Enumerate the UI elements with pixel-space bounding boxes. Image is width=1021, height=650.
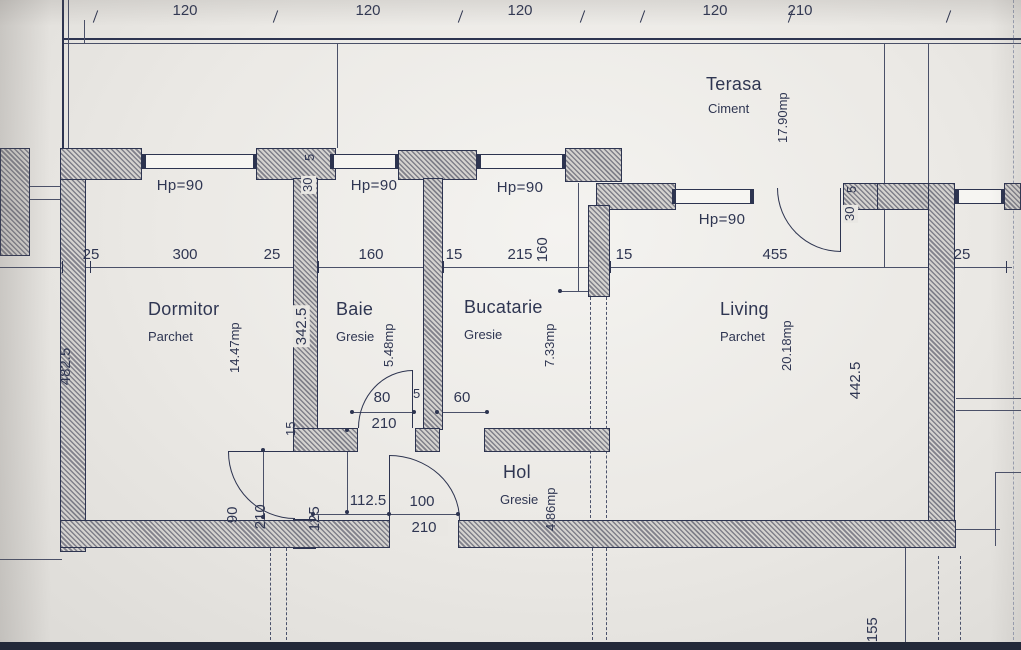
top-dim-label: 120	[493, 2, 547, 19]
photo-bottom-edge	[0, 642, 1021, 650]
dim-dot	[412, 410, 416, 414]
dim-tick	[580, 10, 585, 23]
dim-bucatarie-window: 160	[534, 237, 551, 262]
parapet-label-bucatarie: Hp=90	[488, 179, 552, 196]
dashed-partition-line	[606, 297, 607, 518]
top-dim-label: 120	[688, 2, 742, 19]
room-name-dormitor: Dormitor	[148, 299, 219, 320]
dim-dot	[485, 410, 489, 414]
parapet-label-living: Hp=90	[690, 211, 754, 228]
dormitor-door-height: 210	[252, 504, 269, 529]
entry-door-height: 210	[400, 519, 448, 536]
window-bucatarie	[477, 154, 566, 169]
terrace-top-line-inner	[64, 43, 1021, 44]
dim-label: 160	[346, 246, 396, 263]
dim-dot	[345, 428, 349, 432]
wall-baie-hol	[293, 428, 358, 452]
dashed-projection-line	[938, 556, 939, 645]
right-exterior-line	[956, 529, 1000, 530]
wall-exterior-right	[928, 183, 955, 548]
right-exterior-line	[995, 472, 996, 546]
dim-dot	[345, 510, 349, 514]
wall-bottom-right	[458, 520, 956, 548]
pier-dim: 5	[413, 387, 420, 402]
left-extension-line	[84, 20, 85, 44]
dim-tick	[640, 10, 645, 23]
hol-wall-dim: 125	[306, 506, 323, 531]
dim-left-wall-height: 482.5	[57, 348, 74, 386]
dim-label: 455	[750, 246, 800, 263]
extension-line	[337, 44, 338, 148]
dashed-partition-line	[590, 297, 591, 518]
room-name-terasa: Terasa	[706, 74, 762, 95]
extension-line	[884, 44, 885, 268]
dim-tick	[1006, 261, 1007, 273]
bucatarie-window-dim-line	[578, 183, 579, 292]
terrace-top-line	[64, 38, 1021, 40]
room-area-terasa: 17.90mp	[776, 92, 791, 143]
dim-dot	[261, 448, 265, 452]
bucatarie-opening-dim-line	[437, 412, 487, 413]
wall-top-pier-dormitor-baie	[256, 148, 336, 180]
dim-partition-height: 342.5	[293, 306, 310, 348]
hol-left-dim: 112.5	[340, 492, 396, 509]
dim-dot	[350, 410, 354, 414]
dim-tick	[273, 10, 278, 23]
door-arc-terasa	[777, 188, 841, 252]
parapet-label-baie: Hp=90	[342, 177, 406, 194]
top-dim-label: 120	[341, 2, 395, 19]
baie-door-width: 80	[360, 389, 404, 406]
dim-tick	[93, 10, 98, 23]
window-neighbor-right	[955, 189, 1005, 204]
dim-label: 25	[74, 246, 108, 263]
dim-label: 25	[254, 246, 290, 263]
wall-top-corner-left	[60, 148, 142, 180]
dim-dot	[456, 512, 460, 516]
dim-dot	[435, 410, 439, 414]
dim-tick	[946, 10, 951, 23]
room-area-bucatarie: 7.33mp	[543, 324, 558, 367]
left-boundary-line-inner	[68, 0, 69, 148]
pier-dim-30-right: 30	[843, 204, 858, 222]
room-name-hol: Hol	[503, 462, 531, 483]
right-exterior-line	[956, 398, 1021, 399]
terrace-right-line	[928, 44, 929, 184]
dim-label: 15	[606, 246, 642, 263]
room-name-bucatarie: Bucatarie	[464, 297, 543, 318]
wall-pier-baie-bucatarie-doors	[415, 428, 440, 452]
wall-top-baie-bucatarie	[398, 150, 477, 180]
right-exterior-line	[995, 472, 1021, 473]
bucatarie-opening-width: 60	[440, 389, 484, 406]
dim-tick	[588, 261, 589, 273]
dim-living-height: 442.5	[847, 362, 864, 400]
top-dim-label: 210	[773, 2, 827, 19]
room-finish-dormitor: Parchet	[148, 330, 193, 345]
dim-dot	[558, 289, 562, 293]
wall-neighbor-right	[1004, 183, 1021, 210]
dim-tick	[423, 261, 424, 273]
entry-door-width: 100	[398, 493, 446, 510]
room-finish-living: Parchet	[720, 330, 765, 345]
dim-dot	[387, 512, 391, 516]
dashed-projection-line	[286, 548, 287, 640]
dim-label: 25	[944, 246, 980, 263]
wall-thickness-dim: 15	[284, 421, 299, 435]
room-area-dormitor: 14.47mp	[228, 322, 243, 373]
dormitor-door-width: 90	[224, 507, 241, 524]
left-boundary-line	[62, 0, 64, 148]
dim-155-line	[905, 548, 906, 645]
dashed-projection-line	[606, 548, 607, 640]
room-name-living: Living	[720, 299, 769, 320]
pier-dim-5-left: 5	[303, 154, 318, 161]
room-name-baie: Baie	[336, 299, 373, 320]
dashed-projection-line	[960, 556, 961, 645]
floor-plan-photo: 120 120 120 120 210 Terasa Ciment 17.90m…	[0, 0, 1021, 650]
pier-dim-5-right: 5	[845, 186, 860, 193]
room-finish-bucatarie: Gresie	[464, 328, 502, 343]
dim-label: 15	[438, 246, 470, 263]
window-baie	[330, 154, 399, 169]
dim-tick	[293, 261, 294, 273]
dim-tick	[928, 261, 929, 273]
room-area-hol: 4.86mp	[544, 488, 559, 531]
pier-dim-30-left: 30	[301, 175, 316, 193]
window-living	[672, 189, 754, 204]
right-exterior-line	[956, 410, 1021, 411]
dim-tick	[458, 10, 463, 23]
wall-bottom-left	[60, 520, 390, 548]
room-finish-hol: Gresie	[500, 493, 538, 508]
wall-top-living-corner	[877, 183, 929, 210]
dim-tick	[318, 261, 319, 273]
parapet-label-dormitor: Hp=90	[148, 177, 212, 194]
bottom-left-line	[0, 559, 62, 560]
photo-vignette	[0, 0, 1021, 650]
room-area-baie: 5.48mp	[382, 324, 397, 367]
baie-door-height: 210	[360, 415, 408, 432]
wall-bucatarie-hol	[484, 428, 610, 452]
room-area-living: 20.18mp	[780, 320, 795, 371]
main-dimension-line	[0, 267, 1012, 268]
wall-neighbor-left	[0, 148, 30, 256]
dashed-projection-line	[592, 548, 593, 640]
top-dim-label: 120	[158, 2, 212, 19]
dashed-projection-line	[270, 548, 271, 640]
paper-edge-dashed-line	[1013, 0, 1014, 640]
room-finish-baie: Gresie	[336, 330, 374, 345]
dim-below-plan: 155	[864, 617, 881, 642]
wall-dormitor-baie	[293, 178, 318, 430]
window-dormitor	[142, 154, 257, 169]
wall-top-bucatarie-corner	[565, 148, 622, 182]
dim-tick	[62, 261, 63, 273]
door-arc-entry	[389, 455, 460, 520]
room-finish-terasa: Ciment	[708, 102, 749, 117]
dim-label: 300	[158, 246, 212, 263]
